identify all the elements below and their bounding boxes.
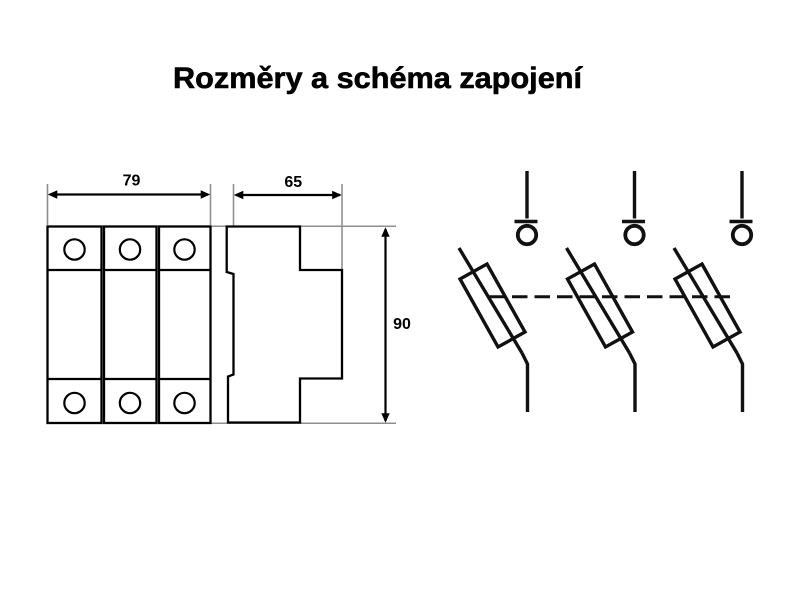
svg-text:79: 79 xyxy=(123,173,141,190)
svg-text:65: 65 xyxy=(284,174,302,191)
svg-text:Rozměry a schéma zapojení: Rozměry a schéma zapojení xyxy=(173,62,584,95)
svg-text:90: 90 xyxy=(393,316,411,333)
